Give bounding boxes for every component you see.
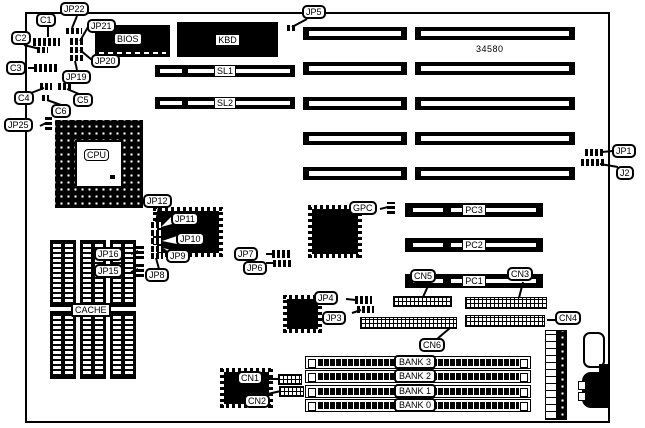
callout-jp6: JP6: [243, 261, 267, 275]
callout-c5: C5: [73, 93, 93, 107]
callout-jp15: JP15: [94, 264, 123, 278]
callout-cn2: CN2: [244, 394, 270, 408]
callout-c3: C3: [6, 61, 26, 75]
callout-jp5: JP5: [302, 5, 326, 19]
callout-c6: C6: [51, 104, 71, 118]
callout-jp11: JP11: [171, 212, 199, 226]
callout-jp22: JP22: [60, 2, 89, 16]
callout-c4: C4: [14, 91, 34, 105]
callout-jp3: JP3: [322, 311, 346, 325]
callout-cn6: CN6: [419, 338, 445, 352]
callout-jp4: JP4: [314, 291, 338, 305]
callout-cn4: CN4: [555, 311, 581, 325]
callout-gpc: GPC: [349, 201, 377, 215]
callout-jp9: JP9: [166, 249, 190, 263]
callout-jp8: JP8: [145, 268, 169, 282]
callout-jp21: JP21: [87, 19, 116, 33]
callout-cn1: CN1: [237, 371, 263, 385]
callout-j2: J2: [616, 166, 634, 180]
callout-jp7: JP7: [234, 247, 258, 261]
callout-jp10: JP10: [176, 232, 205, 246]
callout-jp1: JP1: [612, 144, 636, 158]
callout-jp25: JP25: [4, 118, 33, 132]
callout-jp16: JP16: [94, 247, 123, 261]
callout-cn5: CN5: [410, 269, 436, 283]
callout-c1: C1: [36, 13, 56, 27]
callout-cn3: CN3: [507, 267, 533, 281]
callout-jp12: JP12: [143, 194, 172, 208]
callout-jp20: JP20: [91, 54, 120, 68]
cache-label: CACHE: [71, 303, 111, 317]
motherboard-diagram: BIOS KBD SL1 SL2 34580 CPU CACHE PC3 P: [0, 0, 645, 428]
callout-c2: C2: [11, 31, 31, 45]
callout-jp19: JP19: [62, 70, 91, 84]
